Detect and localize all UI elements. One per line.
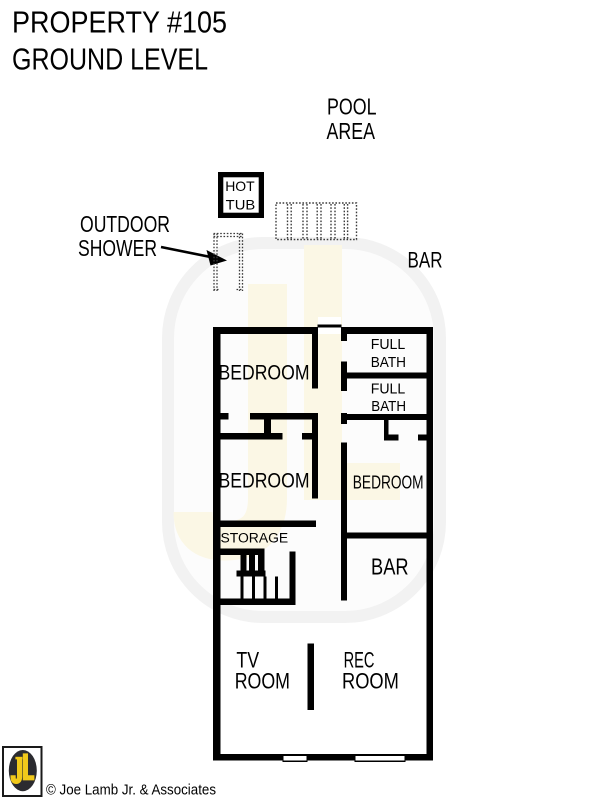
svg-text:BATH: BATH [371, 355, 406, 371]
svg-text:ROOM: ROOM [342, 669, 399, 694]
svg-text:SHOWER: SHOWER [78, 235, 157, 261]
svg-text:POOL: POOL [327, 94, 377, 120]
svg-text:BEDROOM: BEDROOM [219, 470, 310, 493]
svg-text:HOT: HOT [225, 178, 255, 194]
svg-text:BEDROOM: BEDROOM [353, 472, 424, 492]
svg-text:AREA: AREA [327, 118, 376, 144]
svg-text:PROPERTY #105: PROPERTY #105 [12, 5, 227, 40]
svg-text:ROOM: ROOM [235, 669, 290, 694]
svg-text:BAR: BAR [408, 248, 443, 273]
svg-text:GROUND LEVEL: GROUND LEVEL [12, 42, 208, 77]
svg-text:FULL: FULL [371, 337, 406, 353]
svg-text:BEDROOM: BEDROOM [219, 362, 310, 385]
svg-text:STORAGE: STORAGE [221, 530, 289, 545]
svg-text:BAR: BAR [371, 553, 409, 579]
svg-text:OUTDOOR: OUTDOOR [80, 211, 170, 237]
svg-text:BATH: BATH [371, 399, 406, 415]
svg-text:FULL: FULL [371, 382, 406, 398]
svg-text:TUB: TUB [226, 197, 256, 213]
svg-text:© Joe Lamb Jr. & Associates: © Joe Lamb Jr. & Associates [46, 783, 216, 799]
